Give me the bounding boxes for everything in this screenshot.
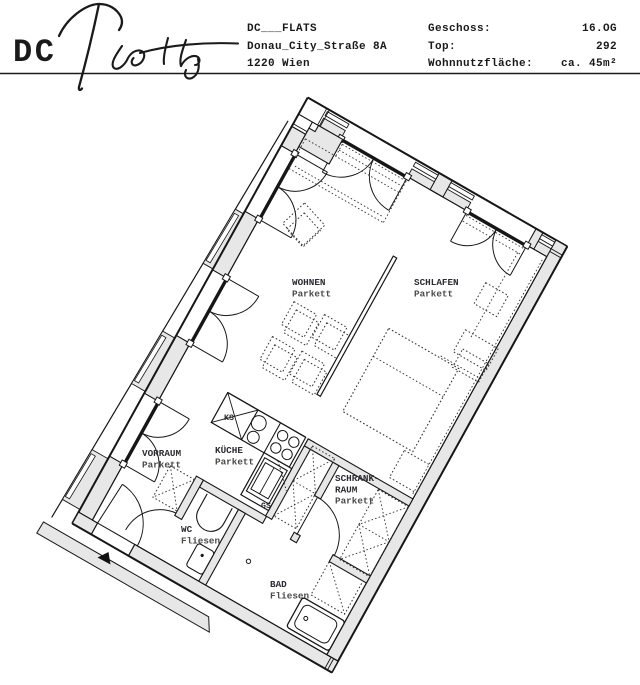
svg-text:DC___FLATS: DC___FLATS bbox=[247, 23, 317, 35]
svg-text:Parkett: Parkett bbox=[335, 496, 374, 507]
svg-text:DC: DC bbox=[13, 34, 56, 71]
svg-text:WC: WC bbox=[181, 524, 193, 535]
svg-text:Fliesen: Fliesen bbox=[181, 536, 220, 547]
svg-text:RAUM: RAUM bbox=[335, 485, 358, 496]
svg-text:SCHRANK-: SCHRANK- bbox=[335, 473, 380, 484]
svg-text:Parkett: Parkett bbox=[292, 289, 331, 300]
svg-text:Geschoss:: Geschoss: bbox=[428, 23, 491, 35]
svg-text:KS: KS bbox=[224, 414, 234, 423]
svg-text:Top:: Top: bbox=[428, 41, 456, 53]
svg-text:16.OG: 16.OG bbox=[582, 23, 617, 35]
svg-text:ca. 45m²: ca. 45m² bbox=[561, 58, 617, 70]
svg-text:GS: GS bbox=[261, 502, 271, 511]
svg-text:VORRAUM: VORRAUM bbox=[142, 448, 181, 459]
svg-text:Fliesen: Fliesen bbox=[270, 591, 309, 602]
svg-text:BAD: BAD bbox=[270, 579, 287, 590]
svg-text:Parkett: Parkett bbox=[215, 457, 254, 468]
svg-text:292: 292 bbox=[596, 41, 617, 53]
svg-text:WOHNEN: WOHNEN bbox=[292, 277, 325, 288]
svg-text:Parkett: Parkett bbox=[142, 460, 181, 471]
svg-text:1220 Wien: 1220 Wien bbox=[247, 58, 310, 70]
svg-text:SCHLAFEN: SCHLAFEN bbox=[414, 277, 459, 288]
svg-text:Wohnnutzfläche:: Wohnnutzfläche: bbox=[428, 58, 533, 70]
svg-text:KÜCHE: KÜCHE bbox=[215, 445, 243, 456]
svg-text:Donau_City_Straße 8A: Donau_City_Straße 8A bbox=[247, 41, 387, 53]
svg-text:Parkett: Parkett bbox=[414, 289, 453, 300]
